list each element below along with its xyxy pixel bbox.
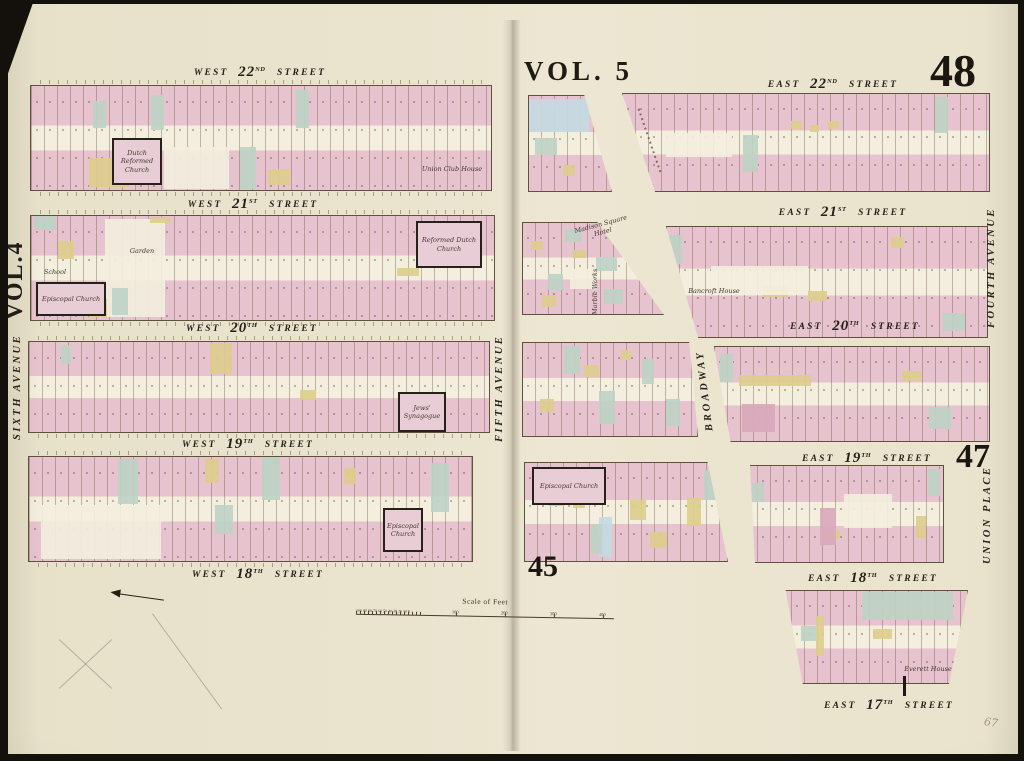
city-block-e19-e18-east-of-broadway: [744, 465, 944, 563]
lot-accent: [431, 463, 449, 512]
lot-accent: [150, 217, 170, 223]
lot-accent: [564, 346, 580, 375]
lot-accent: [151, 95, 165, 129]
lot-accent: [828, 121, 839, 129]
lot-accent: [816, 616, 824, 655]
union-club-house-label: Union Club House: [414, 166, 490, 174]
lot-accent: [591, 524, 601, 554]
pencil-scratch-line: [152, 613, 222, 709]
lot-accent: [666, 399, 680, 426]
city-block-e20-e19-east-of-broadway: [714, 346, 990, 442]
scale-bar: Scale of Feet 100 90 80 70 60 50 40 30 2…: [352, 595, 618, 626]
scan-edge: [0, 0, 1024, 4]
scan-edge: [0, 0, 8, 761]
street-title-east-19: EAST 19TH STREET: [757, 450, 977, 467]
lot-accent: [535, 138, 557, 155]
school-label: School: [38, 269, 72, 277]
lot-accent: [529, 99, 589, 132]
street-title-west-19: WEST 19TH STREET: [138, 436, 358, 453]
lot-accent: [540, 399, 554, 412]
lot-accent: [720, 354, 734, 383]
city-block-e22-e21-east-of-broadway: [622, 93, 990, 192]
lot-accent: [801, 626, 816, 641]
lot-accent: [642, 359, 654, 384]
bancroft-house-label: Bancroft House: [688, 288, 740, 296]
lot-accent: [296, 90, 310, 127]
lot-accent: [599, 391, 615, 423]
street-title-east-20: EAST 20TH STREET: [745, 318, 965, 335]
street-title-east-18: EAST 18TH STREET: [763, 570, 983, 587]
lot-accent: [164, 147, 228, 189]
pencil-annotation: 67: [983, 715, 999, 730]
north-arrow: [109, 584, 167, 610]
volume-5-label: VOL. 5: [524, 56, 633, 87]
lot-accent: [397, 268, 419, 276]
lot-accent: [743, 135, 758, 173]
lot-accent: [573, 250, 586, 258]
lot-accent: [820, 508, 836, 545]
everett-house-label: Everett House: [902, 666, 954, 674]
lot-accent: [844, 494, 892, 527]
lot-accent: [630, 500, 646, 520]
sixth-avenue-label: SIXTH AVENUE: [12, 336, 28, 440]
lot-accent: [268, 169, 290, 185]
survey-mark: [903, 676, 906, 696]
city-block-e22-e21-west-of-broadway: [528, 95, 612, 192]
lot-accent: [240, 147, 256, 189]
city-block-e20-e19-west-of-broadway: [522, 342, 698, 437]
street-title-west-18: WEST 18TH STREET: [148, 566, 368, 583]
street-title-west-20: WEST 20TH STREET: [142, 320, 362, 337]
street-title-west-22: WEST 22ND STREET: [150, 64, 370, 81]
lot-accent: [891, 237, 904, 248]
lot-accent: [205, 459, 219, 483]
lot-accent: [563, 165, 575, 177]
lot-accent: [215, 505, 233, 534]
lot-accent: [58, 241, 74, 259]
scan-edge: [1018, 0, 1024, 761]
lot-accent: [742, 404, 775, 433]
lot-accent: [862, 592, 953, 620]
scan-edge: [0, 754, 1024, 761]
jews-synagogue-building: Jews' Synagogue: [398, 392, 446, 432]
street-title-east-22: EAST 22ND STREET: [723, 76, 943, 93]
dutch-reformed-church-building: Dutch Reformed Church: [112, 138, 162, 185]
lot-accent: [810, 125, 819, 132]
lot-accent: [61, 345, 71, 365]
fourth-avenue-label: FOURTH AVENUE: [986, 228, 1002, 328]
lot-accent: [935, 97, 948, 133]
lot-accent: [928, 469, 940, 496]
reformed-dutch-church-building: Reformed Dutch Church: [416, 221, 482, 268]
union-place-label: UNION PLACE: [982, 468, 998, 564]
lot-accent: [542, 295, 556, 307]
lot-accent: [666, 133, 732, 158]
lot-accent: [584, 365, 600, 377]
lot-accent: [621, 350, 632, 360]
lot-accent: [344, 468, 356, 484]
lot-accent: [93, 101, 107, 128]
lot-accent: [929, 407, 951, 428]
lot-accent: [704, 470, 716, 500]
lot-accent: [808, 291, 827, 301]
city-block-w22-w21: [30, 85, 492, 191]
lot-accent: [548, 274, 564, 290]
lot-accent: [112, 288, 128, 315]
lot-accent: [752, 483, 764, 503]
scale-bar-line: [356, 614, 614, 620]
street-title-west-21: WEST 21ST STREET: [143, 196, 363, 213]
lot-accent: [531, 241, 544, 250]
lot-accent: [687, 498, 701, 526]
scale-bar-label: Scale of Feet: [352, 595, 618, 609]
lot-accent: [669, 235, 682, 264]
street-title-east-17: EAST 17TH STREET: [779, 697, 999, 714]
broadway-label: BROADWAY: [694, 345, 716, 436]
lot-accent: [916, 516, 926, 538]
lot-accent: [118, 459, 138, 504]
street-title-east-21: EAST 21ST STREET: [733, 204, 953, 221]
north-arrow-shaft: [118, 593, 164, 600]
episcopal-church-building-w18: Episcopal Church: [383, 508, 423, 552]
marble-works-label: Marble Works: [592, 268, 604, 316]
lot-accent: [41, 505, 161, 559]
episcopal-church-building-w20: Episcopal Church: [36, 282, 106, 316]
episcopal-church-building-e19: Episcopal Church: [532, 467, 606, 505]
atlas-plate-scan: VOL.4 SIXTH AVENUE WEST 22ND STREET Dutc…: [0, 0, 1024, 761]
lot-accent: [650, 532, 666, 548]
lot-accent: [873, 629, 892, 638]
lot-accent: [791, 121, 802, 129]
north-arrow-head: [110, 588, 121, 597]
lot-accent: [604, 289, 622, 304]
lot-accent: [262, 457, 280, 500]
plate-number-45: 45: [528, 550, 558, 584]
scan-corner-shadow: [0, 0, 34, 96]
lot-accent: [739, 375, 811, 387]
lot-accent: [902, 371, 921, 381]
lot-accent: [210, 343, 232, 375]
lot-accent: [300, 390, 316, 400]
fifth-avenue-label: FIFTH AVENUE: [494, 342, 510, 442]
lot-accent: [34, 216, 56, 230]
garden-label: Garden: [116, 248, 168, 256]
